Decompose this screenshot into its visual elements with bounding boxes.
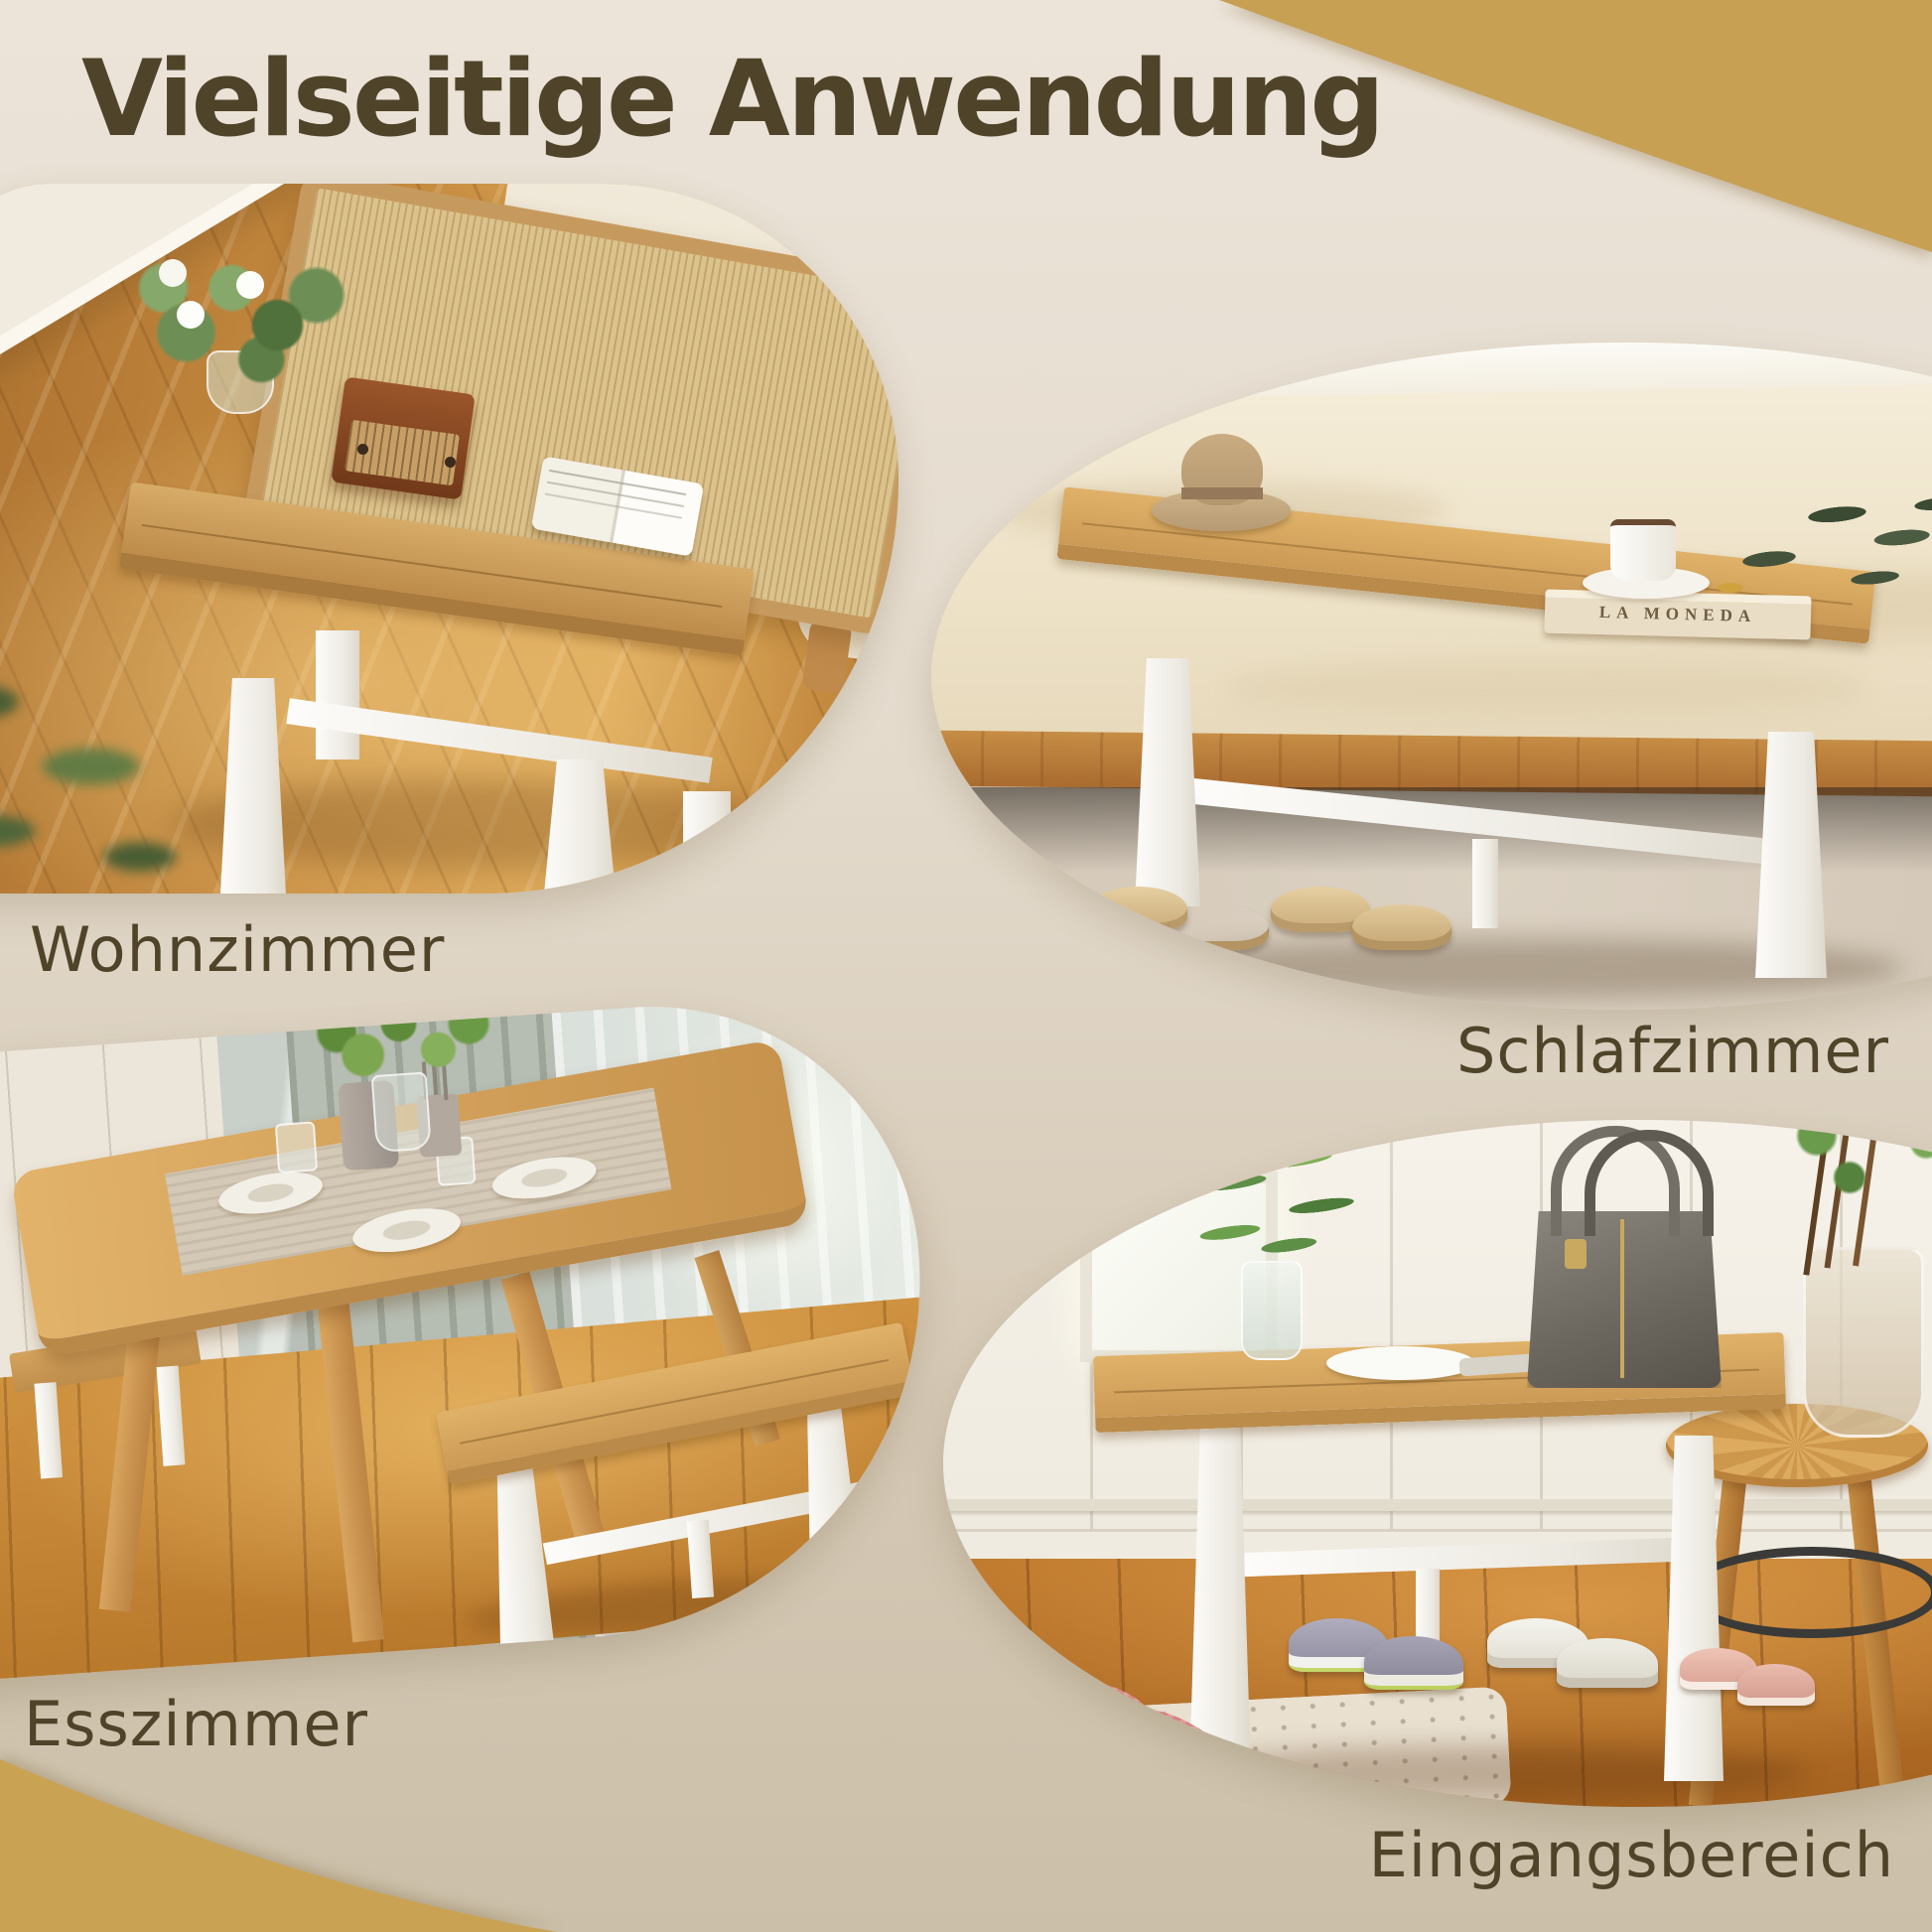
page-title: Vielseitige Anwendung	[81, 38, 1382, 160]
kids-shoe-pink	[1737, 1664, 1815, 1706]
label-schlafzimmer: Schlafzimmer	[1456, 1015, 1889, 1087]
bag-zipper	[1620, 1219, 1624, 1378]
label-eingangsbereich: Eingangsbereich	[1369, 1819, 1894, 1891]
sneaker-white	[1557, 1638, 1658, 1688]
tall-glass-vase	[1803, 1247, 1924, 1438]
stool-metal-ring	[1684, 1547, 1932, 1638]
schlafzimmer-photo: LA MONEDA	[931, 343, 1932, 1010]
duvet-fold	[1229, 660, 1864, 716]
sneaker-gray	[1364, 1636, 1463, 1690]
hat-band	[1181, 487, 1263, 499]
slipper	[1352, 904, 1451, 950]
drinking-glass	[275, 1121, 318, 1173]
olive-branch	[1709, 449, 1932, 623]
bench-rear-left-leg	[316, 630, 359, 759]
palm-leaves	[1171, 1123, 1377, 1287]
radio-knob	[357, 444, 368, 455]
tray	[1326, 1346, 1475, 1380]
foreground-plant-leaves	[0, 650, 238, 894]
bag-charm	[1565, 1239, 1587, 1269]
bench-rear-right-leg	[683, 791, 731, 894]
bench-center-support	[1472, 839, 1498, 928]
product-infographic: Vielseitige Anwendung	[0, 0, 1932, 1932]
slipper	[1170, 904, 1269, 950]
esszimmer-photo	[0, 989, 944, 1682]
tote-bag-body	[1527, 1211, 1722, 1388]
wohnzimmer-photo	[0, 184, 898, 894]
eingangsbereich-photo	[943, 1120, 1932, 1807]
label-esszimmer: Esszimmer	[24, 1688, 368, 1760]
branch-leaves	[1773, 1120, 1932, 1219]
label-wohnzimmer: Wohnzimmer	[30, 913, 445, 986]
wainscot-rail	[943, 1499, 1932, 1511]
coffee-cup	[1610, 519, 1676, 581]
bouquet-greenery	[129, 243, 357, 392]
white-flower	[177, 301, 205, 329]
